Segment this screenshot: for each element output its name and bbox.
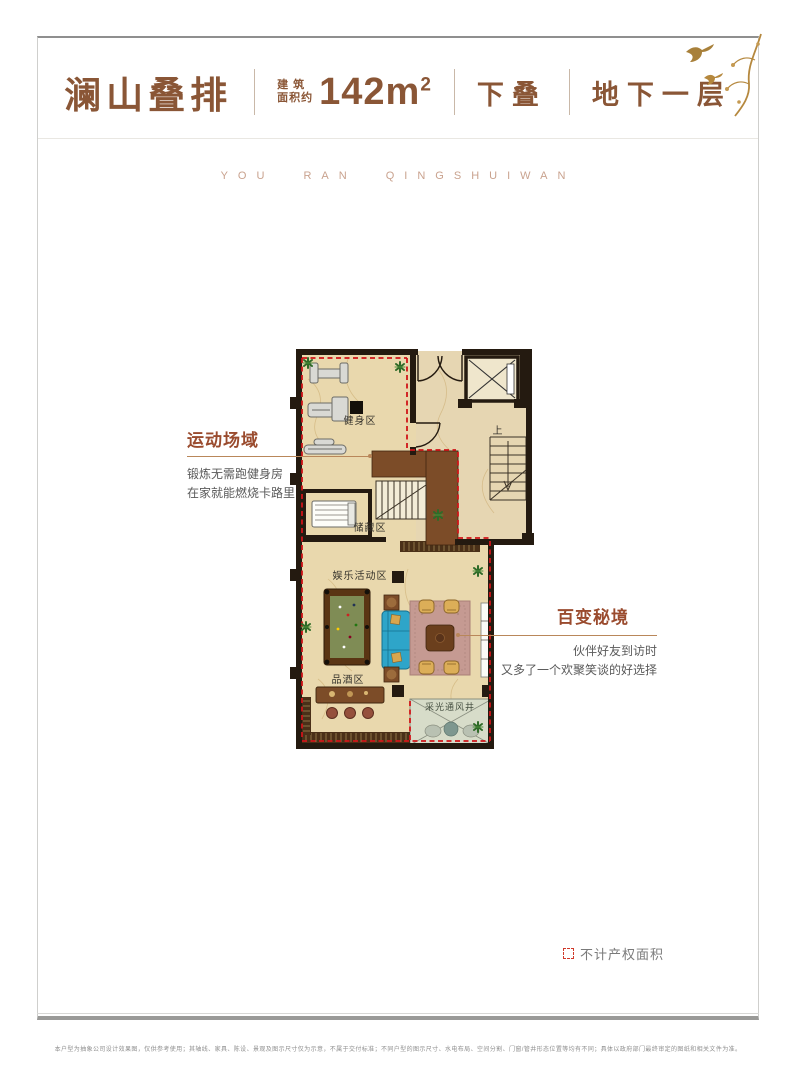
storage-stairs: [376, 481, 426, 519]
right-leader-line: [459, 635, 657, 636]
bar-stool: [327, 708, 338, 719]
armchair: [444, 600, 459, 613]
area-value: 142m2: [319, 71, 432, 114]
dashed-box-icon: [563, 948, 574, 959]
header-divider: [254, 69, 255, 115]
entertainment-label: 娱乐活动区: [333, 569, 388, 582]
stairs-up-label: 上: [493, 425, 504, 437]
area-sup: 2: [420, 74, 432, 95]
area-group: 建 筑 面积约 142m2: [277, 71, 432, 114]
left-annotation-title: 运动场域: [187, 426, 259, 451]
disclaimer-text: 本户型为抽象公司设计效果图，仅供参考使用；其轴线、家具、陈设、景观及图示尺寸仅为…: [0, 1044, 796, 1053]
left-leader-dot: [368, 454, 372, 458]
page-title: 澜山叠排: [64, 65, 232, 119]
wine-bar: [316, 687, 384, 719]
left-annotation-text: 锻炼无需跑健身房 在家就能燃烧卡路里: [187, 465, 295, 503]
bird-icon: [686, 44, 714, 62]
right-leader-dot: [456, 633, 460, 637]
left-leader-line: [187, 456, 370, 457]
bar-stool: [345, 708, 356, 719]
vent-label: 采光通风井: [425, 701, 475, 712]
right-annotation-title: 百变秘境: [557, 603, 629, 628]
area-label: 建 筑 面积约: [277, 79, 313, 105]
storage-label: 储藏区: [354, 521, 387, 534]
tag-stack: 下叠: [477, 73, 547, 112]
header-divider: [569, 69, 570, 115]
floor-plan: 上: [288, 349, 540, 749]
bird-icon: [704, 73, 723, 85]
branch-bird-decoration: [668, 32, 764, 120]
bar-stool: [363, 708, 374, 719]
area-label-line1: 建 筑: [277, 79, 313, 92]
watermark-text: YOU RAN QINGSHUIWAN: [0, 170, 796, 182]
elevator: [458, 353, 530, 408]
header: 澜山叠排 建 筑 面积约 142m2 下叠 地下一层: [38, 52, 758, 132]
area-label-line2: 面积约: [277, 92, 313, 105]
armchair: [419, 661, 434, 674]
floorplan-page: 澜山叠排 建 筑 面积约 142m2 下叠 地下一层 YOU RAN QINGS…: [0, 0, 796, 1080]
armchair: [419, 600, 434, 613]
sofa: [382, 611, 410, 669]
header-divider: [454, 69, 455, 115]
wine-label: 品酒区: [332, 674, 365, 686]
frame-bottom-line: [37, 1013, 759, 1014]
legend: 不计产权面积: [563, 944, 664, 963]
gym-label: 健身区: [344, 414, 377, 427]
legend-label: 不计产权面积: [580, 944, 664, 963]
storage-core-lower: [426, 451, 458, 545]
header-separator: [38, 138, 758, 139]
right-annotation-text: 伙伴好友到访时 又多了一个欢聚笑谈的好选择: [457, 642, 657, 680]
billiard-table: [324, 589, 370, 665]
